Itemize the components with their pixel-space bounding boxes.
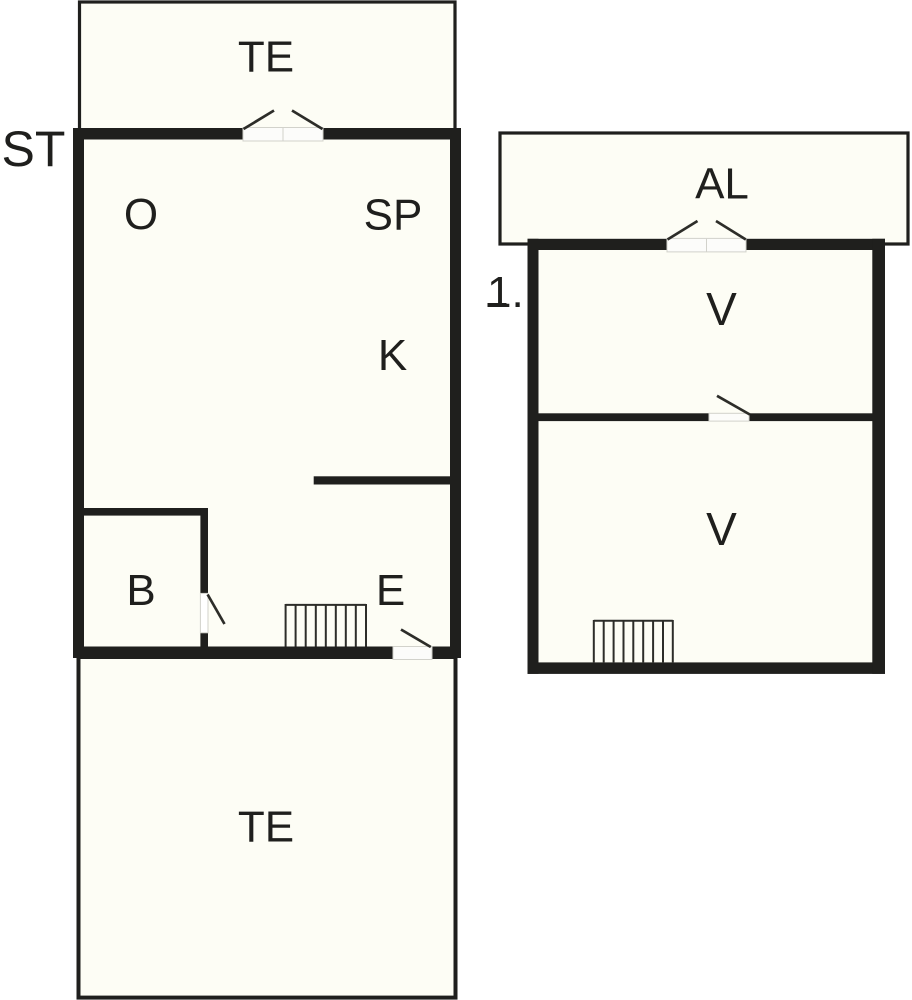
svg-text:AL: AL [695,160,749,209]
svg-text:1.: 1. [487,268,524,317]
svg-text:SP: SP [364,191,423,240]
svg-text:E: E [376,566,405,615]
svg-text:V: V [706,283,737,335]
svg-text:TE: TE [238,803,294,852]
svg-text:ST: ST [2,121,66,177]
svg-text:B: B [126,566,155,615]
svg-text:O: O [124,190,158,239]
svg-text:TE: TE [238,33,294,82]
svg-text:V: V [706,503,737,555]
svg-text:K: K [378,331,407,380]
